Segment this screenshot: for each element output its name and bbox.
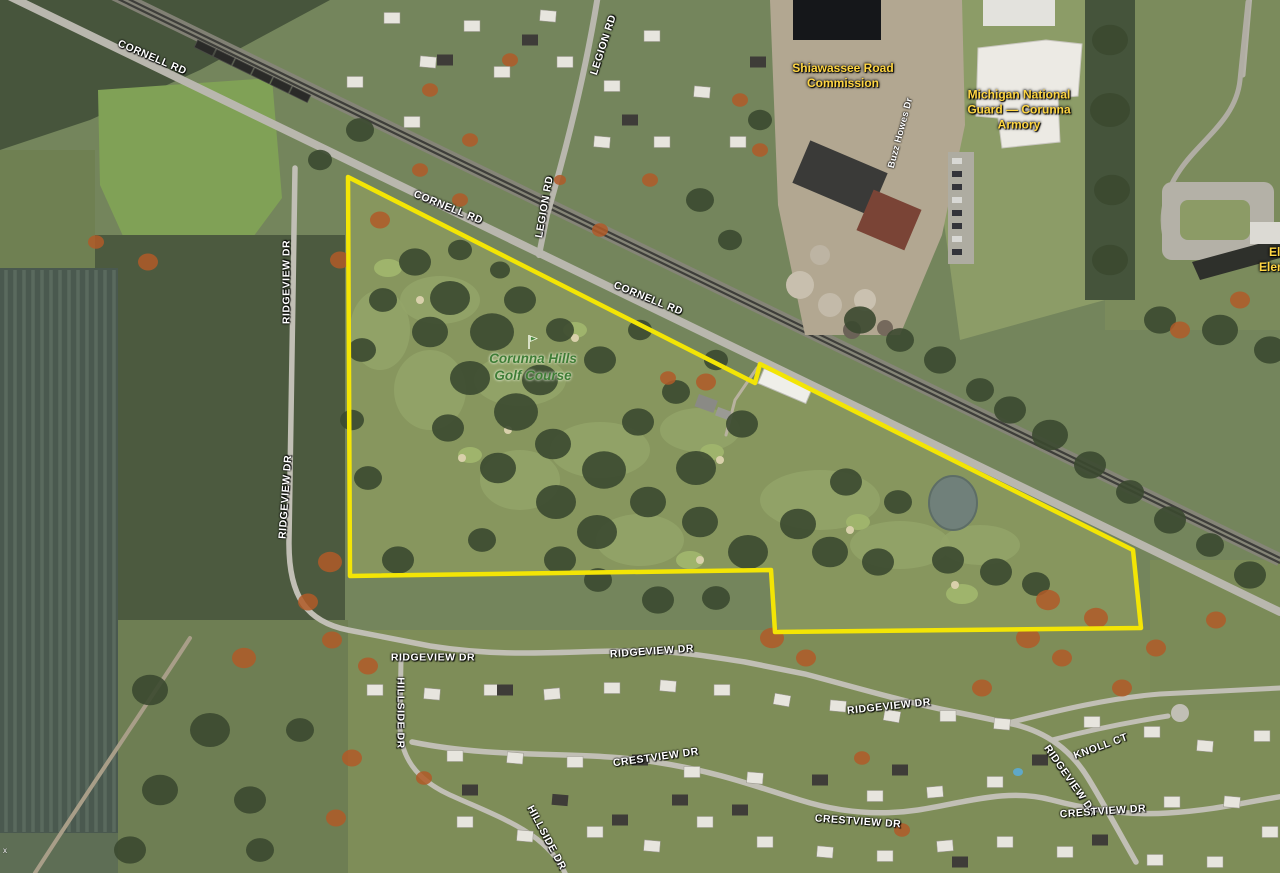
backyard-pool <box>1013 768 1023 776</box>
satellite-map[interactable]: CORNELL RDCORNELL RDCORNELL RDLEGION RDL… <box>0 0 1280 873</box>
commission-building <box>793 0 881 40</box>
armory-parking <box>948 152 974 264</box>
knoll-court-culdesac <box>1171 704 1189 722</box>
map-canvas <box>0 0 1280 873</box>
commercial-building <box>983 0 1055 26</box>
school-building <box>1250 222 1280 244</box>
pond <box>929 476 977 530</box>
